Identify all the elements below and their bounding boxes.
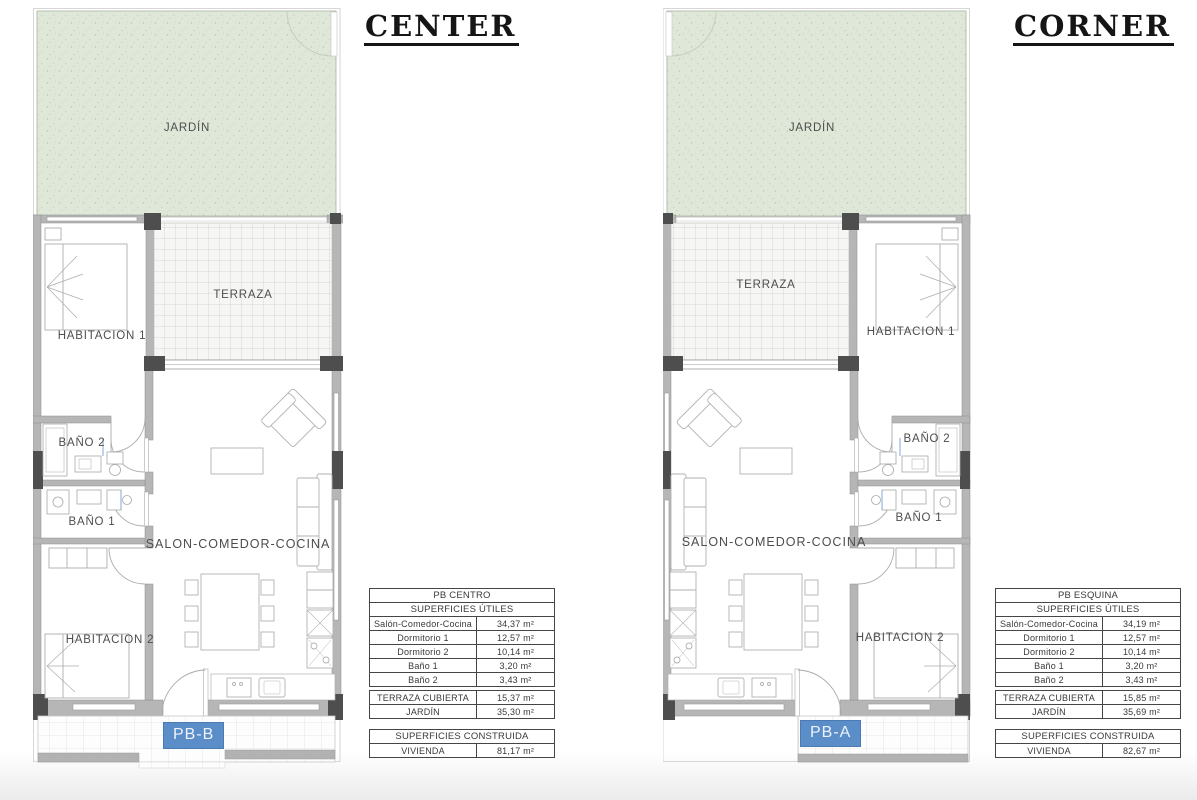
table-row: Baño 23,43 m² — [996, 673, 1181, 687]
room-label-salon: SALON-COMEDOR-COCINA — [146, 537, 331, 551]
table-subtitle: SUPERFICIES ÚTILES — [370, 603, 555, 617]
table-row: VIVIENDA81,17 m² — [370, 744, 555, 758]
room-label-bano2: BAÑO 2 — [904, 433, 951, 445]
table-row: Baño 23,43 m² — [370, 673, 555, 687]
areas-table-center-utiles: PB CENTRO SUPERFICIES ÚTILES Salón-Comed… — [369, 588, 555, 687]
areas-table-corner-utiles: PB ESQUINA SUPERFICIES ÚTILES Salón-Come… — [995, 588, 1181, 687]
room-label-jardin: JARDÍN — [789, 122, 835, 134]
table-row: Salón-Comedor-Cocina34,19 m² — [996, 617, 1181, 631]
room-label-salon: SALON-COMEDOR-COCINA — [682, 535, 867, 549]
areas-table-center-exterior: TERRAZA CUBIERTA15,37 m² JARDÍN35,30 m² — [369, 690, 555, 719]
table-row: JARDÍN35,30 m² — [370, 705, 555, 719]
room-label-terraza: TERRAZA — [213, 289, 272, 301]
table-row: Dormitorio 210,14 m² — [996, 645, 1181, 659]
table-row: VIVIENDA82,67 m² — [996, 744, 1181, 758]
table-title: SUPERFICIES CONSTRUIDA — [370, 730, 555, 744]
floor-plan-sheet: JARDÍN TERRAZA HABITACION 1 BAÑO 2 BAÑO … — [0, 0, 1197, 800]
table-row: Salón-Comedor-Cocina34,37 m² — [370, 617, 555, 631]
table-subtitle: SUPERFICIES ÚTILES — [996, 603, 1181, 617]
unit-badge-pb-b: PB-B — [163, 722, 224, 749]
table-row: Baño 13,20 m² — [370, 659, 555, 673]
areas-table-corner-exterior: TERRAZA CUBIERTA15,85 m² JARDÍN35,69 m² — [995, 690, 1181, 719]
room-label-habitacion2: HABITACION 2 — [66, 634, 155, 646]
unit-badge-pb-a: PB-A — [800, 720, 861, 747]
table-row: Dormitorio 210,14 m² — [370, 645, 555, 659]
plan-title-center: CENTER — [364, 10, 519, 46]
floor-plan-corner: JARDÍN TERRAZA HABITACION 1 BAÑO 2 BAÑO … — [663, 8, 973, 770]
table-row: JARDÍN35,69 m² — [996, 705, 1181, 719]
table-row: Baño 13,20 m² — [996, 659, 1181, 673]
room-label-terraza: TERRAZA — [736, 279, 795, 291]
floor-plan-center: JARDÍN TERRAZA HABITACION 1 BAÑO 2 BAÑO … — [33, 8, 343, 770]
room-label-habitacion2: HABITACION 2 — [856, 632, 945, 644]
room-label-bano1: BAÑO 1 — [896, 512, 943, 524]
table-row: TERRAZA CUBIERTA15,85 m² — [996, 691, 1181, 705]
room-label-jardin: JARDÍN — [164, 122, 210, 134]
table-title: SUPERFICIES CONSTRUIDA — [996, 730, 1181, 744]
areas-table-corner-construida: SUPERFICIES CONSTRUIDA VIVIENDA82,67 m² — [995, 729, 1181, 758]
table-row: TERRAZA CUBIERTA15,37 m² — [370, 691, 555, 705]
table-title: PB CENTRO — [370, 589, 555, 603]
areas-table-center-construida: SUPERFICIES CONSTRUIDA VIVIENDA81,17 m² — [369, 729, 555, 758]
table-title: PB ESQUINA — [996, 589, 1181, 603]
room-label-bano1: BAÑO 1 — [69, 516, 116, 528]
room-label-habitacion1: HABITACION 1 — [58, 330, 147, 342]
plan-title-corner: CORNER — [1013, 10, 1174, 46]
table-row: Dormitorio 112,57 m² — [996, 631, 1181, 645]
table-row: Dormitorio 112,57 m² — [370, 631, 555, 645]
room-label-habitacion1: HABITACION 1 — [867, 326, 956, 338]
room-label-bano2: BAÑO 2 — [59, 437, 106, 449]
